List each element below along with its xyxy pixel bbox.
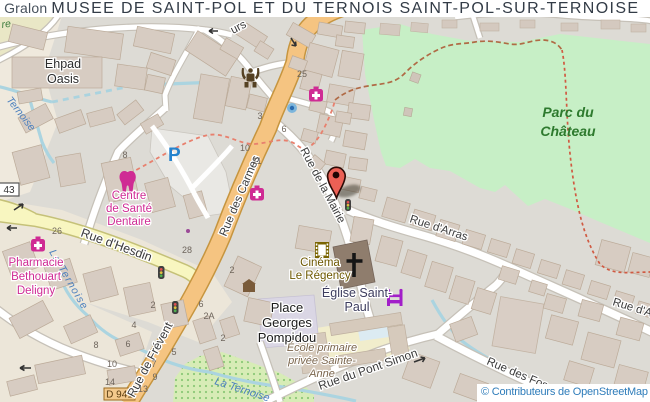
svg-text:Ehpad: Ehpad [45,57,81,71]
svg-text:Oasis: Oasis [47,72,79,86]
svg-text:6: 6 [198,299,203,309]
svg-text:25: 25 [297,69,307,79]
svg-text:Château: Château [540,123,596,139]
svg-text:Georges: Georges [262,315,312,330]
svg-text:13: 13 [138,384,148,394]
svg-text:2: 2 [220,333,225,343]
svg-text:P: P [168,145,181,166]
svg-text:6: 6 [281,124,286,134]
svg-text:4: 4 [131,320,136,330]
svg-text:2: 2 [150,300,155,310]
svg-text:7: 7 [151,359,156,369]
svg-text:de Santé: de Santé [106,203,152,215]
svg-text:28: 28 [182,245,192,255]
svg-text:Pharmacie: Pharmacie [9,257,64,269]
svg-text:Place: Place [271,300,304,315]
svg-text:5: 5 [171,347,176,357]
svg-text:26: 26 [52,226,62,236]
svg-text:Église Saint-: Église Saint- [322,285,392,300]
svg-text:Centre: Centre [112,190,147,202]
svg-text:Le Régency: Le Régency [289,270,351,282]
svg-text:2: 2 [229,265,234,275]
svg-text:Bethouart: Bethouart [11,271,62,283]
svg-text:8: 8 [93,340,98,350]
svg-text:10: 10 [107,359,117,369]
svg-text:6: 6 [125,339,130,349]
svg-text:11: 11 [252,156,261,166]
svg-text:re: re [1,18,12,31]
svg-text:privée Sainte-: privée Sainte- [287,355,356,367]
svg-text:Paul: Paul [344,300,369,314]
svg-text:École primaire: École primaire [287,341,357,354]
svg-text:3: 3 [257,111,262,121]
svg-text:14: 14 [105,377,115,387]
svg-text:Anne: Anne [308,368,335,380]
svg-text:2A: 2A [203,311,214,321]
svg-text:43: 43 [3,185,15,196]
svg-text:Cinéma: Cinéma [300,257,340,269]
svg-text:Deligny: Deligny [17,285,56,297]
svg-text:8: 8 [122,150,127,160]
svg-text:Dentaire: Dentaire [107,216,150,228]
svg-text:Parc du: Parc du [542,104,594,120]
svg-text:10: 10 [240,143,250,153]
svg-text:9: 9 [152,372,157,382]
